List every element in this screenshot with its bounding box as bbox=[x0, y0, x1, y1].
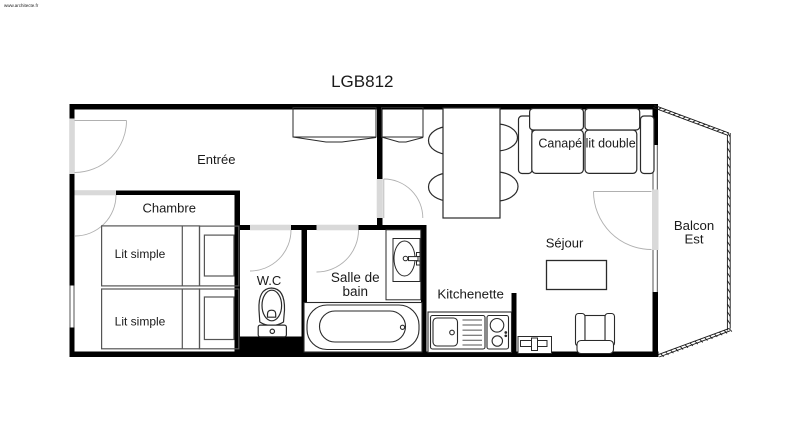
svg-text:Est: Est bbox=[684, 232, 703, 247]
svg-text:Lit simple: Lit simple bbox=[115, 247, 166, 261]
svg-text:Lit simple: Lit simple bbox=[115, 315, 166, 329]
svg-text:Entrée: Entrée bbox=[197, 152, 235, 167]
svg-text:W.C: W.C bbox=[257, 273, 282, 288]
svg-text:Chambre: Chambre bbox=[142, 201, 195, 216]
svg-text:bain: bain bbox=[343, 284, 369, 299]
svg-text:Kitchenette: Kitchenette bbox=[437, 287, 504, 302]
svg-text:Séjour: Séjour bbox=[546, 236, 584, 251]
svg-text:Salle de: Salle de bbox=[331, 270, 380, 285]
svg-text:LGB812: LGB812 bbox=[331, 72, 393, 91]
svg-text:Canapé lit double: Canapé lit double bbox=[538, 137, 635, 151]
svg-text:www.architecte.fr: www.architecte.fr bbox=[4, 3, 39, 8]
